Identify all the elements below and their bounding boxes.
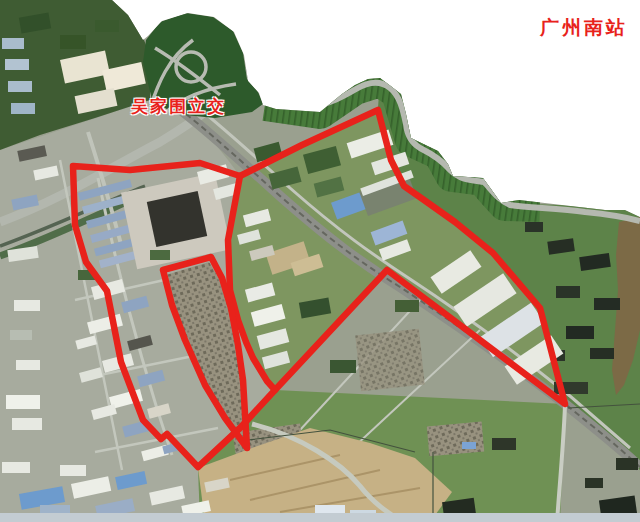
label-wujiawei-interchange: 吴家围立交: [131, 95, 226, 118]
label-guangzhou-south-station: 广州南站: [540, 15, 628, 41]
map-screenshot: 广州南站 吴家围立交: [0, 0, 640, 522]
satellite-map-image: [0, 0, 640, 522]
bottom-edge-strip: [0, 513, 640, 522]
satellite-imagery-layer: [0, 0, 640, 522]
